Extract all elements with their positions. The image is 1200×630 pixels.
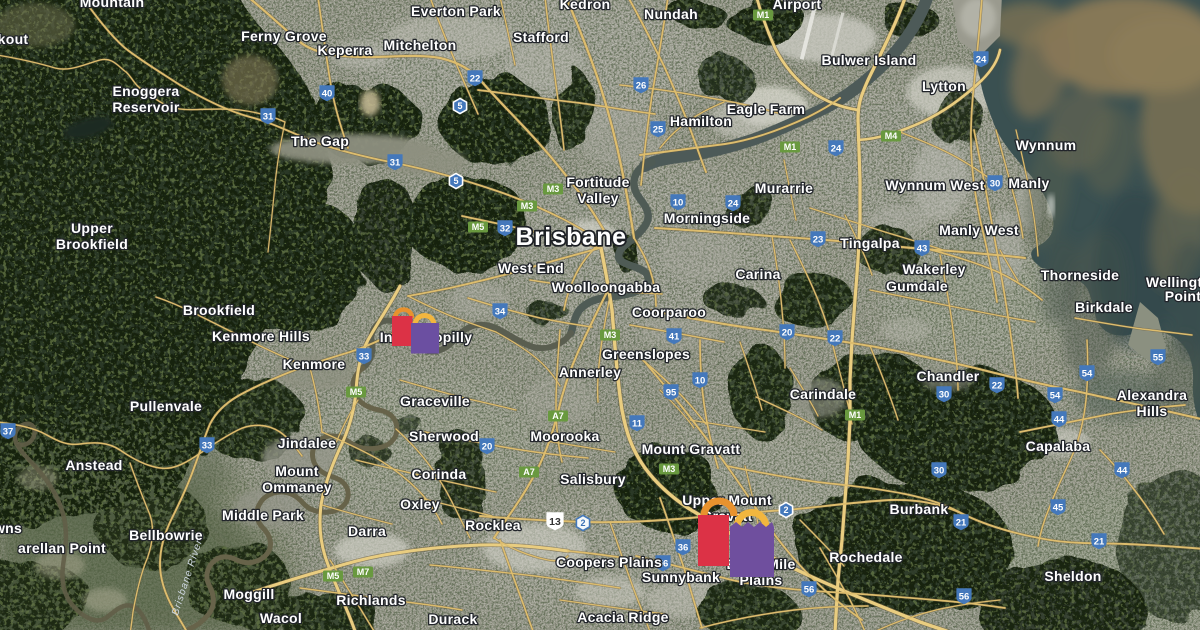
svg-text:Ommaney: Ommaney <box>262 479 332 495</box>
svg-text:M1: M1 <box>849 410 862 420</box>
svg-text:33: 33 <box>202 440 213 451</box>
svg-text:22: 22 <box>470 73 481 84</box>
svg-text:Gumdale: Gumdale <box>886 278 948 294</box>
svg-text:37: 37 <box>3 426 14 437</box>
svg-text:Point: Point <box>1165 288 1200 304</box>
svg-text:Acacia Ridge: Acacia Ridge <box>577 609 669 625</box>
svg-text:M4: M4 <box>885 131 898 141</box>
svg-text:54: 54 <box>1082 368 1093 379</box>
svg-text:Chandler: Chandler <box>916 368 979 384</box>
svg-text:Carina: Carina <box>735 266 780 282</box>
svg-text:Ferny Grove: Ferny Grove <box>241 28 327 44</box>
svg-text:24: 24 <box>728 198 739 209</box>
svg-text:55: 55 <box>1153 352 1164 363</box>
svg-text:56: 56 <box>959 591 970 602</box>
svg-text:22: 22 <box>992 380 1003 391</box>
svg-text:Morningside: Morningside <box>664 210 751 226</box>
svg-text:2: 2 <box>580 518 585 528</box>
svg-text:Thorneside: Thorneside <box>1041 267 1119 283</box>
svg-text:41: 41 <box>669 331 680 342</box>
svg-text:Annerley: Annerley <box>559 364 621 380</box>
svg-text:Wynnum: Wynnum <box>1016 137 1077 153</box>
svg-text:95: 95 <box>666 387 677 398</box>
svg-text:M5: M5 <box>472 222 485 232</box>
svg-text:Kedron: Kedron <box>560 0 611 12</box>
svg-text:Sunnybank: Sunnybank <box>642 569 720 585</box>
svg-text:31: 31 <box>390 157 401 168</box>
svg-text:56: 56 <box>804 584 815 595</box>
svg-text:36: 36 <box>678 542 689 553</box>
svg-text:Carindale: Carindale <box>790 386 857 402</box>
svg-text:wns: wns <box>0 520 22 536</box>
svg-text:Brookfield: Brookfield <box>56 236 128 252</box>
svg-text:Lytton: Lytton <box>922 78 966 94</box>
svg-text:21: 21 <box>956 517 967 528</box>
svg-text:Coorparoo: Coorparoo <box>632 304 706 320</box>
svg-text:11: 11 <box>632 418 643 429</box>
svg-text:Rochedale: Rochedale <box>829 549 903 565</box>
svg-text:M3: M3 <box>521 201 534 211</box>
svg-text:Durack: Durack <box>428 611 477 627</box>
svg-text:Rocklea: Rocklea <box>465 517 521 533</box>
svg-text:Graceville: Graceville <box>400 393 470 409</box>
svg-text:Birkdale: Birkdale <box>1075 299 1133 315</box>
svg-text:Bellbowrie: Bellbowrie <box>129 527 203 543</box>
svg-text:M3: M3 <box>663 464 676 474</box>
svg-text:Brookfield: Brookfield <box>183 302 255 318</box>
svg-text:Middle Park: Middle Park <box>222 507 304 523</box>
svg-text:Manly West: Manly West <box>939 222 1019 238</box>
svg-text:Darra: Darra <box>348 523 386 539</box>
svg-text:Jindalee: Jindalee <box>278 435 336 451</box>
svg-text:34: 34 <box>495 306 506 317</box>
svg-text:Bulwer Island: Bulwer Island <box>822 52 917 68</box>
svg-text:Everton Park: Everton Park <box>411 3 501 19</box>
svg-text:West End: West End <box>498 260 564 276</box>
svg-text:33: 33 <box>359 351 370 362</box>
svg-text:Kenmore Hills: Kenmore Hills <box>212 328 310 344</box>
svg-text:kout: kout <box>0 31 28 47</box>
svg-text:Mitchelton: Mitchelton <box>384 37 457 53</box>
svg-text:Wacol: Wacol <box>260 610 302 626</box>
svg-text:20: 20 <box>782 327 793 338</box>
svg-text:M1: M1 <box>784 142 797 152</box>
svg-text:40: 40 <box>322 88 333 99</box>
svg-text:Wynnum West: Wynnum West <box>885 177 984 193</box>
svg-text:Corinda: Corinda <box>412 466 467 482</box>
svg-text:32: 32 <box>500 223 511 234</box>
svg-text:M3: M3 <box>604 330 617 340</box>
svg-text:Airport: Airport <box>773 0 822 12</box>
svg-text:44: 44 <box>1117 465 1128 476</box>
svg-text:Wakerley: Wakerley <box>902 261 965 277</box>
svg-text:M7: M7 <box>357 567 370 577</box>
svg-text:Fortitude: Fortitude <box>566 174 629 190</box>
svg-text:Alexandra: Alexandra <box>1117 387 1187 403</box>
svg-text:13: 13 <box>549 516 561 528</box>
svg-text:30: 30 <box>939 389 950 400</box>
svg-text:44: 44 <box>1054 414 1065 425</box>
svg-text:31: 31 <box>263 111 274 122</box>
svg-text:Kenmore: Kenmore <box>283 356 346 372</box>
svg-text:Hamilton: Hamilton <box>670 113 732 129</box>
svg-text:Capalaba: Capalaba <box>1026 438 1091 454</box>
svg-text:Upper: Upper <box>71 220 113 236</box>
svg-text:30: 30 <box>934 465 945 476</box>
svg-text:Sheldon: Sheldon <box>1044 568 1101 584</box>
svg-text:arellan Point: arellan Point <box>18 540 106 556</box>
svg-text:23: 23 <box>813 234 824 245</box>
svg-text:A7: A7 <box>523 467 535 477</box>
svg-text:Greenslopes: Greenslopes <box>602 346 690 362</box>
svg-text:Stafford: Stafford <box>513 29 569 45</box>
svg-text:Valley: Valley <box>577 190 619 206</box>
svg-text:Anstead: Anstead <box>65 457 122 473</box>
svg-text:43: 43 <box>917 243 928 254</box>
svg-text:Salisbury: Salisbury <box>560 471 626 487</box>
svg-text:Woolloongabba: Woolloongabba <box>552 279 661 295</box>
svg-text:5: 5 <box>453 176 458 186</box>
svg-text:Oxley: Oxley <box>400 496 440 512</box>
svg-text:Manly: Manly <box>1008 175 1049 191</box>
svg-text:30: 30 <box>990 178 1001 189</box>
svg-text:2: 2 <box>783 505 788 515</box>
svg-text:Nundah: Nundah <box>644 6 698 22</box>
svg-text:M3: M3 <box>547 184 560 194</box>
svg-text:Hills: Hills <box>1136 403 1167 419</box>
svg-text:20: 20 <box>482 441 493 452</box>
svg-text:Pullenvale: Pullenvale <box>130 398 202 414</box>
svg-text:Mountain: Mountain <box>80 0 145 10</box>
svg-text:Sherwood: Sherwood <box>409 428 479 444</box>
svg-text:Murarrie: Murarrie <box>755 180 813 196</box>
svg-text:22: 22 <box>830 333 841 344</box>
svg-text:Coopers Plains: Coopers Plains <box>556 554 662 570</box>
svg-text:Eagle Farm: Eagle Farm <box>727 101 805 117</box>
svg-text:The Gap: The Gap <box>291 133 349 149</box>
svg-text:Richlands: Richlands <box>336 592 406 608</box>
svg-text:5: 5 <box>457 101 462 111</box>
svg-text:45: 45 <box>1053 502 1064 513</box>
svg-text:25: 25 <box>653 124 664 135</box>
svg-text:54: 54 <box>1050 390 1061 401</box>
svg-text:24: 24 <box>976 54 987 65</box>
svg-text:10: 10 <box>673 197 684 208</box>
svg-text:Mount Gravatt: Mount Gravatt <box>642 441 741 457</box>
svg-text:Tingalpa: Tingalpa <box>840 235 900 251</box>
svg-text:Mount: Mount <box>275 463 319 479</box>
svg-text:M1: M1 <box>757 10 770 20</box>
svg-text:A7: A7 <box>552 411 564 421</box>
svg-text:Burbank: Burbank <box>890 501 949 517</box>
svg-text:Enoggera: Enoggera <box>113 83 180 99</box>
svg-text:Keperra: Keperra <box>317 42 372 58</box>
svg-text:24: 24 <box>831 143 842 154</box>
svg-text:Moggill: Moggill <box>223 586 274 602</box>
svg-text:M5: M5 <box>327 571 340 581</box>
svg-text:Reservoir: Reservoir <box>112 99 180 115</box>
svg-text:26: 26 <box>636 80 647 91</box>
svg-text:21: 21 <box>1094 536 1105 547</box>
svg-text:Brisbane: Brisbane <box>516 223 627 251</box>
svg-text:10: 10 <box>695 375 706 386</box>
svg-text:M5: M5 <box>350 387 363 397</box>
svg-text:Moorooka: Moorooka <box>530 428 599 444</box>
